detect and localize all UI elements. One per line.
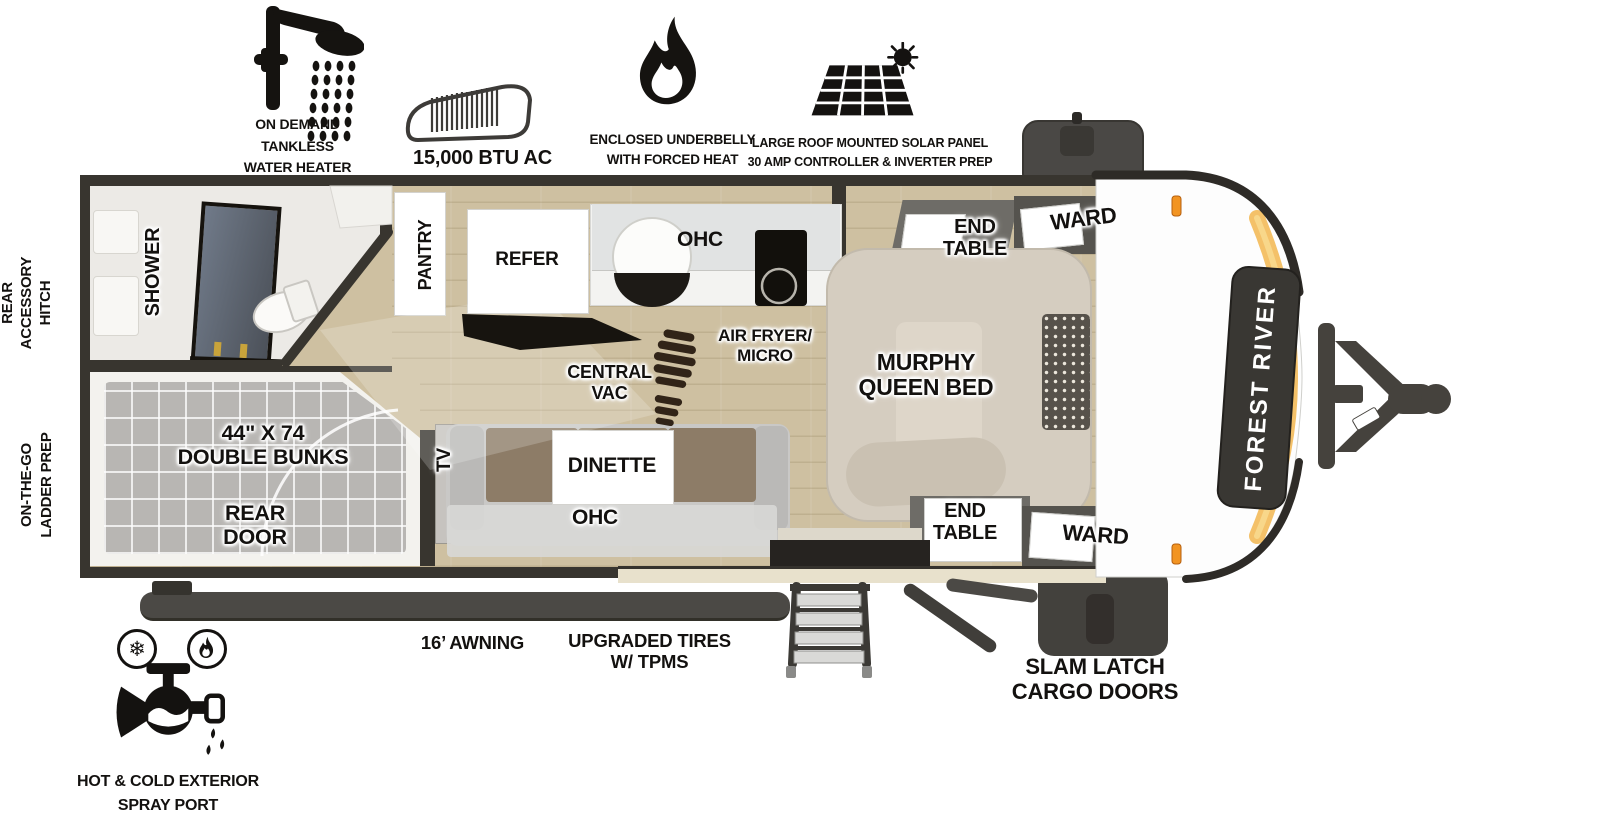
- bunk-dinette-wall: [420, 430, 435, 566]
- marker-light-top: [1172, 196, 1181, 216]
- end-table-top-label: END TABLE: [905, 216, 1045, 261]
- pantry-label: PANTRY: [415, 205, 435, 305]
- rv-floorplan-diagram: ON DEMAND TANKLESS WATER HEATER 15,000 B…: [0, 0, 1600, 833]
- flame-icon: [634, 12, 708, 122]
- rear-accessory-hitch-label: REAR ACCESSORY HITCH: [0, 233, 58, 373]
- cooktop: [755, 230, 807, 306]
- central-vac-label: CENTRAL VAC: [552, 362, 667, 404]
- spray-port-label: HOT & COLD EXTERIOR SPRAY PORT: [68, 770, 268, 818]
- cargo-box-bottom-latch: [1086, 594, 1114, 644]
- shower-enclosure: [190, 201, 281, 370]
- marker-light-bottom: [1172, 544, 1181, 564]
- entry-steps: [766, 578, 890, 678]
- double-bunks-label: 44" X 74 DOUBLE BUNKS: [138, 422, 388, 469]
- dinette-label: DINETTE: [552, 430, 672, 503]
- solar-panel-icon: [808, 42, 926, 128]
- tv-label: TV: [434, 430, 454, 490]
- awning-rail: [140, 592, 790, 621]
- faucet-icon: [112, 663, 230, 763]
- hitch-a-frame: [1318, 323, 1451, 469]
- front-cap: FOREST RIVER: [1088, 160, 1463, 596]
- dinette-ohc-label: OHC: [530, 506, 660, 531]
- ac-label: 15,000 BTU AC: [395, 147, 570, 171]
- bath-bunk-wall: [90, 360, 392, 372]
- murphy-bed-label: MURPHY QUEEN BED: [826, 350, 1026, 401]
- tires-label: UPGRADED TIRES W/ TPMS: [552, 630, 747, 673]
- water-heater-label: ON DEMAND TANKLESS WATER HEATER: [210, 114, 385, 179]
- air-fryer-label: AIR FRYER/ MICRO: [690, 326, 840, 366]
- refer-label: REFER: [467, 209, 587, 312]
- bath-cabinet: [93, 276, 139, 336]
- ladder-prep-label: ON-THE-GO LADDER PREP: [17, 410, 57, 560]
- bath-cabinet: [93, 210, 139, 254]
- murphy-bed-vent-panel: [1042, 314, 1090, 430]
- cargo-box-top-nub: [1072, 112, 1082, 124]
- solar-label: LARGE ROOF MOUNTED SOLAR PANEL 30 AMP CO…: [740, 134, 1000, 172]
- cargo-box-top-latch: [1060, 126, 1094, 156]
- awning-label: 16’ AWNING: [390, 632, 555, 654]
- end-table-bottom-label: END TABLE: [895, 500, 1035, 545]
- ac-unit-icon: [402, 80, 542, 146]
- shower-label: SHOWER: [142, 212, 162, 332]
- awning-rail-mount: [152, 581, 192, 595]
- kitchen-ohc-label: OHC: [640, 228, 760, 253]
- shower-knob: [214, 342, 222, 356]
- shower-knob: [240, 344, 248, 358]
- cargo-doors-label: SLAM LATCH CARGO DOORS: [990, 654, 1200, 705]
- rear-door-label: REAR DOOR: [150, 502, 360, 549]
- pantry-wall: [380, 186, 392, 320]
